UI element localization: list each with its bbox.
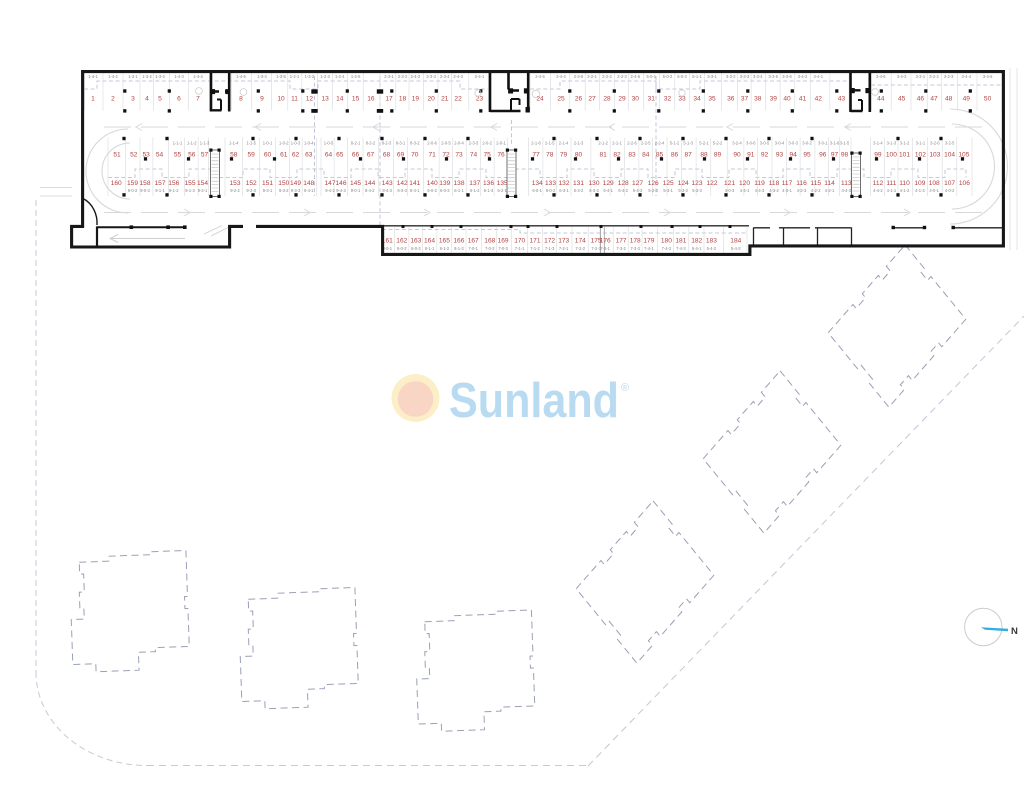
svg-text:19: 19 <box>412 96 420 103</box>
svg-text:9-2-2: 9-2-2 <box>230 188 240 193</box>
svg-text:8-2-2: 8-2-2 <box>366 141 376 146</box>
svg-text:123: 123 <box>691 180 702 187</box>
svg-text:25: 25 <box>557 96 565 103</box>
svg-text:6-0-1: 6-0-1 <box>532 188 542 193</box>
svg-text:1-0-5: 1-0-5 <box>324 141 334 146</box>
svg-text:3-3-6: 3-3-6 <box>782 74 792 79</box>
svg-text:149: 149 <box>290 180 301 187</box>
svg-text:84: 84 <box>642 151 650 158</box>
svg-text:146: 146 <box>335 180 346 187</box>
svg-text:94: 94 <box>790 151 798 158</box>
svg-text:7-1-2: 7-1-2 <box>530 246 540 251</box>
svg-text:58: 58 <box>230 151 238 158</box>
svg-text:32: 32 <box>664 96 672 103</box>
svg-text:2-4-6: 2-4-6 <box>631 74 641 79</box>
svg-text:180: 180 <box>661 238 672 245</box>
svg-text:2: 2 <box>111 96 115 103</box>
svg-text:4-4-3: 4-4-3 <box>755 188 765 193</box>
svg-text:73: 73 <box>455 151 463 158</box>
svg-text:44: 44 <box>877 96 885 103</box>
svg-text:78: 78 <box>546 151 554 158</box>
svg-text:9-0-2: 9-0-2 <box>128 188 138 193</box>
svg-text:3-2-6: 3-2-6 <box>930 141 940 146</box>
svg-text:7-0-3: 7-0-3 <box>498 246 508 251</box>
svg-text:127: 127 <box>632 180 643 187</box>
svg-text:3-4-4: 3-4-4 <box>962 74 972 79</box>
svg-text:1-1-4: 1-1-4 <box>229 141 239 146</box>
svg-text:147: 147 <box>324 180 335 187</box>
svg-text:70: 70 <box>411 151 419 158</box>
svg-text:184: 184 <box>730 238 741 245</box>
svg-text:2-4-3: 2-4-3 <box>453 74 463 79</box>
svg-text:1-0-3: 1-0-3 <box>291 141 301 146</box>
svg-text:71: 71 <box>429 151 437 158</box>
svg-text:6: 6 <box>177 96 181 103</box>
svg-text:65: 65 <box>336 151 344 158</box>
svg-text:46: 46 <box>917 96 925 103</box>
svg-text:152: 152 <box>246 180 257 187</box>
svg-text:118: 118 <box>769 180 780 187</box>
svg-text:35: 35 <box>708 96 716 103</box>
svg-text:6-0-3: 6-0-3 <box>440 188 450 193</box>
svg-text:9-0-1: 9-0-1 <box>351 188 361 193</box>
svg-text:3-1-2: 3-1-2 <box>900 141 910 146</box>
svg-text:97: 97 <box>831 151 839 158</box>
svg-text:67: 67 <box>367 151 375 158</box>
svg-text:4-0-2: 4-0-2 <box>945 188 955 193</box>
svg-text:74: 74 <box>470 151 478 158</box>
svg-text:170: 170 <box>514 238 525 245</box>
svg-text:86: 86 <box>671 151 679 158</box>
svg-text:64: 64 <box>325 151 333 158</box>
svg-text:8-1-3: 8-1-3 <box>454 246 464 251</box>
svg-text:116: 116 <box>796 180 807 187</box>
svg-text:1-0-4: 1-0-4 <box>304 141 314 146</box>
svg-text:18: 18 <box>399 96 407 103</box>
svg-text:43: 43 <box>838 96 846 103</box>
svg-text:72: 72 <box>442 151 450 158</box>
svg-text:2-3-5: 2-3-5 <box>574 74 584 79</box>
svg-text:30: 30 <box>632 96 640 103</box>
svg-text:1-2-4: 1-2-4 <box>335 74 345 79</box>
svg-text:160: 160 <box>111 180 122 187</box>
svg-text:113: 113 <box>841 180 852 187</box>
svg-text:9-3-2: 9-3-2 <box>279 188 289 193</box>
svg-text:6-2-1: 6-2-1 <box>497 188 507 193</box>
svg-text:1: 1 <box>91 96 95 103</box>
svg-text:164: 164 <box>424 238 435 245</box>
svg-text:183: 183 <box>706 238 717 245</box>
svg-text:1-3-4: 1-3-4 <box>257 74 267 79</box>
svg-text:49: 49 <box>963 96 971 103</box>
svg-text:4-4-3: 4-4-3 <box>842 188 852 193</box>
svg-text:5: 5 <box>158 96 162 103</box>
svg-text:20: 20 <box>428 96 436 103</box>
svg-text:1-4-4: 1-4-4 <box>193 74 203 79</box>
svg-text:3-4-3: 3-4-3 <box>897 74 907 79</box>
svg-text:157: 157 <box>154 180 165 187</box>
svg-text:1-2-2: 1-2-2 <box>305 74 315 79</box>
svg-text:3-2-4: 3-2-4 <box>732 141 742 146</box>
svg-text:9-0-3: 9-0-3 <box>140 188 150 193</box>
svg-text:39: 39 <box>770 96 778 103</box>
svg-text:83: 83 <box>628 151 636 158</box>
svg-text:7-2-2: 7-2-2 <box>576 246 586 251</box>
svg-text:1-1-2: 1-1-2 <box>187 141 197 146</box>
svg-text:8-1-1: 8-1-1 <box>425 246 435 251</box>
svg-text:15: 15 <box>352 96 360 103</box>
svg-text:153: 153 <box>229 180 240 187</box>
svg-text:5-3-2: 5-3-2 <box>678 188 688 193</box>
svg-text:17: 17 <box>385 96 393 103</box>
svg-text:66: 66 <box>352 151 360 158</box>
svg-text:4-4-1: 4-4-1 <box>740 188 750 193</box>
svg-text:2-0-6: 2-0-6 <box>427 141 437 146</box>
svg-text:9-3-1: 9-3-1 <box>263 188 273 193</box>
svg-text:95: 95 <box>803 151 811 158</box>
svg-text:45: 45 <box>898 96 906 103</box>
svg-text:3-2-1: 3-2-1 <box>916 74 926 79</box>
svg-text:134: 134 <box>532 180 543 187</box>
svg-text:111: 111 <box>886 180 896 187</box>
svg-text:9-1-1: 9-1-1 <box>155 188 165 193</box>
svg-text:6-1-3: 6-1-3 <box>484 188 494 193</box>
svg-text:1-3-3: 1-3-3 <box>155 74 165 79</box>
svg-text:75: 75 <box>484 151 492 158</box>
svg-text:174: 174 <box>575 238 586 245</box>
svg-text:9-3-3: 9-3-3 <box>291 188 301 193</box>
svg-text:165: 165 <box>439 238 450 245</box>
svg-text:7-3-1: 7-3-1 <box>600 246 610 251</box>
svg-text:1-0-2: 1-0-2 <box>279 141 289 146</box>
svg-text:21: 21 <box>441 96 449 103</box>
svg-text:138: 138 <box>453 180 464 187</box>
svg-text:131: 131 <box>573 180 584 187</box>
svg-text:42: 42 <box>815 96 823 103</box>
svg-text:129: 129 <box>603 180 614 187</box>
svg-text:1-2-5: 1-2-5 <box>351 74 361 79</box>
svg-text:3-4-5: 3-4-5 <box>983 74 993 79</box>
svg-text:2-3-3: 2-3-3 <box>426 74 436 79</box>
svg-text:8-4-2: 8-4-2 <box>365 188 375 193</box>
svg-text:92: 92 <box>761 151 769 158</box>
svg-text:9-4-3: 9-4-3 <box>336 188 346 193</box>
svg-text:Sunland: Sunland <box>449 374 619 428</box>
svg-text:2-1-6: 2-1-6 <box>531 141 541 146</box>
svg-text:3-3-3: 3-3-3 <box>740 74 750 79</box>
svg-text:®: ® <box>621 382 629 394</box>
svg-text:26: 26 <box>575 96 583 103</box>
svg-text:27: 27 <box>588 96 596 103</box>
svg-text:1-1-5: 1-1-5 <box>246 141 256 146</box>
svg-text:8-2-1: 8-2-1 <box>351 141 361 146</box>
svg-text:91: 91 <box>747 151 755 158</box>
svg-text:109: 109 <box>914 180 925 187</box>
svg-text:9-4-2: 9-4-2 <box>325 188 335 193</box>
svg-text:31: 31 <box>648 96 656 103</box>
svg-text:168: 168 <box>484 238 495 245</box>
svg-text:182: 182 <box>691 238 702 245</box>
svg-text:4-3-1: 4-3-1 <box>782 188 792 193</box>
svg-text:85: 85 <box>656 151 664 158</box>
svg-text:38: 38 <box>754 96 762 103</box>
svg-text:5-2-1: 5-2-1 <box>699 141 709 146</box>
svg-text:178: 178 <box>630 238 641 245</box>
svg-text:115: 115 <box>811 180 822 187</box>
svg-text:3-1-1: 3-1-1 <box>916 141 926 146</box>
svg-text:5-4-3: 5-4-3 <box>731 246 741 251</box>
svg-text:4-2-3: 4-2-3 <box>797 188 807 193</box>
svg-text:2-1-3: 2-1-3 <box>574 141 584 146</box>
svg-text:6-1-2: 6-1-2 <box>470 188 480 193</box>
svg-text:1-3-1: 1-3-1 <box>128 74 138 79</box>
svg-text:8-3-2: 8-3-2 <box>410 141 420 146</box>
svg-text:50: 50 <box>984 96 992 103</box>
svg-text:140: 140 <box>427 180 438 187</box>
svg-text:3-0-3: 3-0-3 <box>788 141 798 146</box>
svg-text:5-0-1: 5-0-1 <box>647 74 657 79</box>
svg-text:6-3-3: 6-3-3 <box>589 188 599 193</box>
svg-text:151: 151 <box>262 180 273 187</box>
svg-text:87: 87 <box>685 151 693 158</box>
svg-text:8-1-2: 8-1-2 <box>440 246 450 251</box>
svg-text:5-0-3: 5-0-3 <box>677 74 687 79</box>
svg-text:9: 9 <box>260 96 264 103</box>
svg-text:1-4-3: 1-4-3 <box>174 74 184 79</box>
svg-text:163: 163 <box>410 238 421 245</box>
svg-text:2-4-1: 2-4-1 <box>475 74 485 79</box>
svg-text:1-1-1: 1-1-1 <box>173 141 183 146</box>
svg-text:148: 148 <box>303 180 314 187</box>
svg-text:2-3-4: 2-3-4 <box>440 74 450 79</box>
svg-text:3-0-1: 3-0-1 <box>818 141 828 146</box>
svg-text:13: 13 <box>322 96 330 103</box>
svg-text:179: 179 <box>643 238 654 245</box>
svg-text:167: 167 <box>468 238 479 245</box>
svg-text:57: 57 <box>201 151 209 158</box>
svg-text:7-4-1: 7-4-1 <box>644 246 654 251</box>
svg-text:8-3-3: 8-3-3 <box>397 188 407 193</box>
svg-text:5-2-3: 5-2-3 <box>648 188 658 193</box>
svg-text:53: 53 <box>143 151 151 158</box>
svg-text:3-2-3: 3-2-3 <box>944 74 954 79</box>
svg-text:5-4-2: 5-4-2 <box>707 246 717 251</box>
svg-text:2-2-2: 2-2-2 <box>602 74 612 79</box>
svg-text:2-2-6: 2-2-6 <box>627 141 637 146</box>
svg-text:48: 48 <box>945 96 953 103</box>
svg-text:181: 181 <box>675 238 686 245</box>
svg-text:4-2-1: 4-2-1 <box>825 188 835 193</box>
svg-text:59: 59 <box>248 151 256 158</box>
svg-text:7: 7 <box>196 96 200 103</box>
svg-text:142: 142 <box>397 180 408 187</box>
svg-text:3-3-4: 3-3-4 <box>753 74 763 79</box>
svg-text:9-2-3: 9-2-3 <box>246 188 256 193</box>
svg-text:1-1-3: 1-1-3 <box>200 141 210 146</box>
svg-text:7-4-2: 7-4-2 <box>662 246 672 251</box>
svg-text:52: 52 <box>130 151 138 158</box>
svg-text:102: 102 <box>915 151 926 158</box>
svg-text:93: 93 <box>776 151 784 158</box>
svg-text:162: 162 <box>396 238 407 245</box>
svg-text:3-0-5: 3-0-5 <box>760 141 770 146</box>
svg-text:137: 137 <box>469 180 480 187</box>
svg-text:156: 156 <box>168 180 179 187</box>
svg-text:135: 135 <box>497 180 508 187</box>
svg-text:1-3-5: 1-3-5 <box>276 74 286 79</box>
svg-text:3-0-2: 3-0-2 <box>802 141 812 146</box>
svg-text:8: 8 <box>239 96 243 103</box>
svg-text:9-4-1: 9-4-1 <box>304 188 314 193</box>
svg-text:104: 104 <box>944 151 955 158</box>
svg-text:34: 34 <box>693 96 701 103</box>
svg-text:1-4-2: 1-4-2 <box>108 74 118 79</box>
svg-text:4-1-2: 4-1-2 <box>900 188 910 193</box>
svg-text:145: 145 <box>350 180 361 187</box>
svg-text:3: 3 <box>131 96 135 103</box>
svg-text:6-4-1: 6-4-1 <box>603 188 613 193</box>
svg-text:55: 55 <box>174 151 182 158</box>
svg-text:3-2-5: 3-2-5 <box>945 141 955 146</box>
svg-text:2-1-4: 2-1-4 <box>559 141 569 146</box>
svg-text:3-1-5: 3-1-5 <box>840 141 850 146</box>
svg-text:36: 36 <box>727 96 735 103</box>
svg-text:2-2-1: 2-2-1 <box>587 74 597 79</box>
svg-text:12: 12 <box>306 96 314 103</box>
svg-text:130: 130 <box>588 180 599 187</box>
svg-text:108: 108 <box>929 180 940 187</box>
svg-text:2-3-3: 2-3-3 <box>469 141 479 146</box>
svg-text:5-1-3: 5-1-3 <box>683 141 693 146</box>
svg-text:126: 126 <box>648 180 659 187</box>
svg-text:2-1-1: 2-1-1 <box>612 141 622 146</box>
svg-text:1-3-2: 1-3-2 <box>142 74 152 79</box>
svg-text:3-1-3: 3-1-3 <box>887 141 897 146</box>
svg-text:4-4-2: 4-4-2 <box>873 188 883 193</box>
svg-text:1-2-3: 1-2-3 <box>320 74 330 79</box>
svg-text:103: 103 <box>929 151 940 158</box>
svg-text:11: 11 <box>291 96 298 103</box>
svg-text:114: 114 <box>824 180 835 187</box>
svg-text:2-4-4: 2-4-4 <box>556 74 566 79</box>
svg-text:4-0-3: 4-0-3 <box>725 188 735 193</box>
svg-text:2-4-2: 2-4-2 <box>411 74 421 79</box>
svg-text:4: 4 <box>145 96 149 103</box>
svg-text:141: 141 <box>409 180 420 187</box>
svg-text:14: 14 <box>336 96 344 103</box>
svg-text:24: 24 <box>536 96 544 103</box>
svg-text:28: 28 <box>603 96 611 103</box>
svg-text:107: 107 <box>944 180 955 187</box>
svg-text:3-4-2: 3-4-2 <box>798 74 808 79</box>
svg-text:7-3-3: 7-3-3 <box>630 246 640 251</box>
svg-text:7-1-1: 7-1-1 <box>515 246 525 251</box>
svg-text:5-3-3: 5-3-3 <box>692 188 702 193</box>
svg-text:136: 136 <box>483 180 494 187</box>
svg-text:154: 154 <box>197 180 208 187</box>
svg-text:8-4-1: 8-4-1 <box>410 188 420 193</box>
svg-text:69: 69 <box>397 151 405 158</box>
svg-text:2-1-2: 2-1-2 <box>598 141 608 146</box>
svg-text:6-4-2: 6-4-2 <box>618 188 628 193</box>
svg-text:121: 121 <box>724 180 735 187</box>
svg-text:3-4-6: 3-4-6 <box>876 74 886 79</box>
svg-text:101: 101 <box>899 151 910 158</box>
svg-text:3-2-2: 3-2-2 <box>929 74 939 79</box>
svg-text:22: 22 <box>454 96 462 103</box>
svg-text:4-1-1: 4-1-1 <box>887 188 897 193</box>
svg-text:7-4-3: 7-4-3 <box>676 246 686 251</box>
svg-text:40: 40 <box>783 96 791 103</box>
svg-text:81: 81 <box>600 151 608 158</box>
svg-text:79: 79 <box>560 151 568 158</box>
svg-text:4-2-2: 4-2-2 <box>811 188 821 193</box>
svg-text:80: 80 <box>575 151 583 158</box>
svg-text:2-0-2: 2-0-2 <box>482 141 492 146</box>
svg-text:132: 132 <box>558 180 569 187</box>
svg-text:2-0-4: 2-0-4 <box>454 141 464 146</box>
svg-text:2-2-3: 2-2-3 <box>617 74 627 79</box>
svg-text:2-1-5: 2-1-5 <box>545 141 555 146</box>
svg-text:3-3-2: 3-3-2 <box>726 74 736 79</box>
svg-text:3-3-1: 3-3-1 <box>707 74 717 79</box>
svg-text:88: 88 <box>700 151 708 158</box>
svg-text:8-3-1: 8-3-1 <box>396 141 406 146</box>
svg-text:5-3-1: 5-3-1 <box>663 188 673 193</box>
svg-text:5-1-1: 5-1-1 <box>692 74 702 79</box>
svg-text:143: 143 <box>382 180 393 187</box>
svg-text:110: 110 <box>899 180 910 187</box>
svg-text:1-4-1: 1-4-1 <box>88 74 98 79</box>
svg-text:41: 41 <box>799 96 807 103</box>
svg-text:112: 112 <box>873 180 884 187</box>
svg-text:3-3-5: 3-3-5 <box>769 74 779 79</box>
svg-text:124: 124 <box>678 180 689 187</box>
svg-text:133: 133 <box>545 180 556 187</box>
svg-text:16: 16 <box>367 96 375 103</box>
svg-text:N: N <box>1011 626 1018 637</box>
svg-text:4-3-2: 4-3-2 <box>769 188 779 193</box>
svg-text:172: 172 <box>544 238 555 245</box>
svg-text:7-0-2: 7-0-2 <box>485 246 495 251</box>
svg-text:1-0-1: 1-0-1 <box>263 141 273 146</box>
svg-text:8-4-3: 8-4-3 <box>382 188 392 193</box>
svg-text:173: 173 <box>558 238 569 245</box>
svg-text:8-2-3: 8-2-3 <box>382 141 392 146</box>
svg-text:3-4-1: 3-4-1 <box>814 74 824 79</box>
svg-text:56: 56 <box>188 151 196 158</box>
svg-text:150: 150 <box>278 180 289 187</box>
svg-text:5-2-2: 5-2-2 <box>713 141 723 146</box>
svg-text:6-3-1: 6-3-1 <box>559 188 569 193</box>
svg-text:6-4-3: 6-4-3 <box>633 188 643 193</box>
svg-text:5-1-2: 5-1-2 <box>670 141 680 146</box>
svg-text:155: 155 <box>184 180 195 187</box>
svg-text:61: 61 <box>280 151 288 158</box>
svg-text:7-3-2: 7-3-2 <box>616 246 626 251</box>
svg-text:158: 158 <box>139 180 150 187</box>
svg-text:139: 139 <box>439 180 450 187</box>
svg-text:2-0-1: 2-0-1 <box>496 141 506 146</box>
svg-text:9-2-1: 9-2-1 <box>198 188 208 193</box>
svg-text:105: 105 <box>958 151 969 158</box>
svg-text:2-2-4: 2-2-4 <box>655 141 665 146</box>
svg-text:120: 120 <box>739 180 750 187</box>
svg-text:4-0-1: 4-0-1 <box>929 188 939 193</box>
svg-text:60: 60 <box>264 151 272 158</box>
svg-text:8-0-3: 8-0-3 <box>411 246 421 251</box>
svg-text:119: 119 <box>754 180 765 187</box>
